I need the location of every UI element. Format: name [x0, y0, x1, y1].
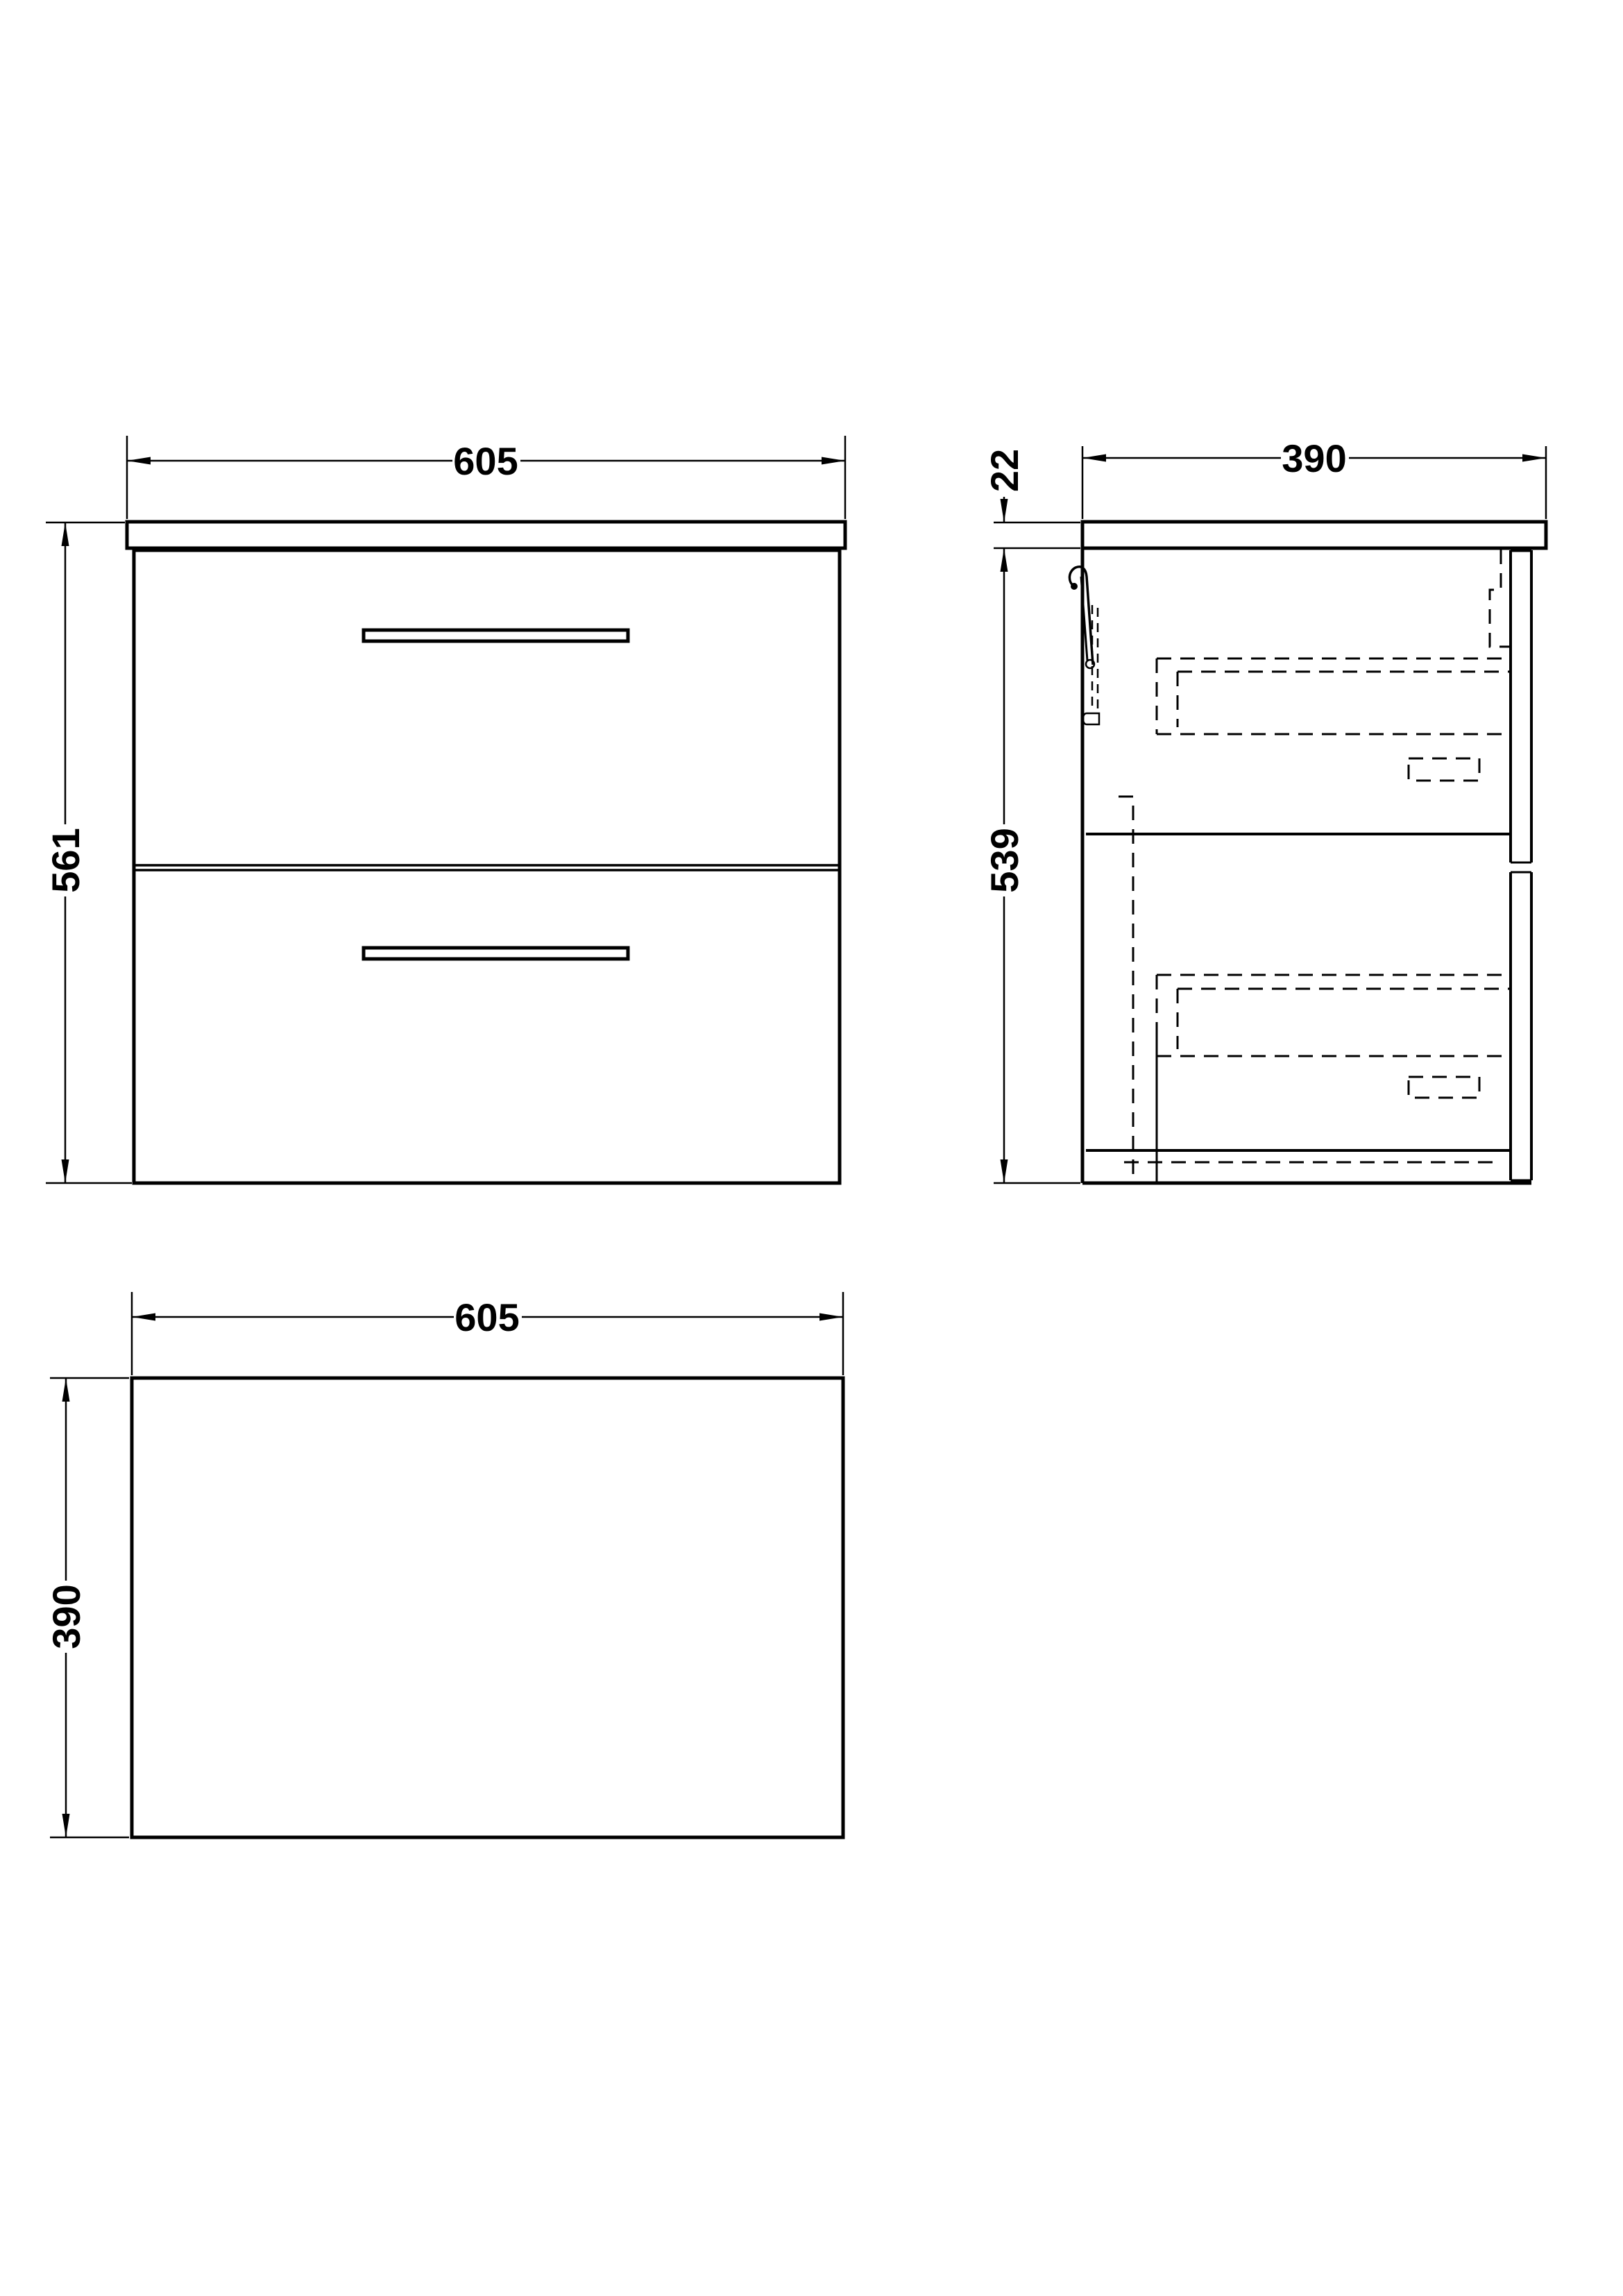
arrowhead-down-icon: [62, 1814, 70, 1837]
arrowhead-right-icon: [1522, 454, 1546, 462]
upper-drawer-handle-hidden: [1409, 758, 1479, 781]
worktop-thickness-label-group: 22: [983, 444, 1026, 497]
drawer-fronts-edge: [1511, 550, 1531, 1180]
cabinet-height-label-group: 539: [983, 824, 1026, 896]
arrowhead-left-icon: [132, 1313, 155, 1321]
lower-drawer-handle: [364, 948, 628, 959]
front-height-label-group: 561: [44, 824, 87, 896]
front-fixing-bracket-hidden: [1490, 550, 1511, 647]
arrowhead-right-icon: [822, 457, 845, 465]
plan-outline: [132, 1378, 843, 1837]
front-width-label: 605: [453, 439, 518, 483]
drawing-canvas: 605 561: [0, 0, 1623, 2296]
plan-view: 605 390: [44, 1292, 843, 1837]
side-depth-dimension: 390: [1082, 436, 1546, 519]
upper-drawer-handle: [364, 630, 628, 641]
front-height-dimension: 561: [44, 522, 132, 1183]
worktop-thickness-label: 22: [983, 449, 1026, 492]
plan-width-label: 605: [454, 1295, 519, 1339]
side-cabinet-height-dimension: 539: [983, 548, 1080, 1183]
arrowhead-up-icon: [1001, 548, 1008, 572]
plan-width-dimension: 605: [132, 1292, 843, 1375]
front-elevation-view: 605 561: [44, 436, 845, 1183]
side-elevation-view: 390 22 539: [983, 436, 1546, 1183]
technical-drawing-page: 605 561: [0, 0, 1623, 2296]
side-depth-label: 390: [1282, 436, 1346, 480]
arrowhead-down-icon: [1001, 499, 1008, 522]
front-worktop: [127, 522, 845, 548]
plan-depth-label: 390: [44, 1584, 88, 1649]
front-cabinet-body: [134, 550, 840, 1183]
plan-depth-dimension: 390: [44, 1378, 129, 1837]
front-width-dimension: 605: [127, 436, 845, 519]
front-height-label: 561: [44, 828, 87, 892]
arrowhead-up-icon: [62, 1378, 70, 1402]
bracket-foot: [1083, 713, 1099, 724]
lower-drawer-handle-hidden: [1409, 1077, 1479, 1098]
rear-recess-hidden-line: [1119, 797, 1133, 1174]
arrowhead-right-icon: [819, 1313, 843, 1321]
cabinet-height-label: 539: [983, 828, 1026, 892]
arrowhead-left-icon: [1082, 454, 1106, 462]
arrowhead-down-icon: [62, 1159, 69, 1183]
side-worktop-thickness-dimension: 22: [983, 444, 1080, 548]
arrowhead-down-icon: [1001, 1159, 1008, 1183]
wall-hanger-bracket-icon: [1069, 567, 1099, 724]
side-worktop: [1082, 522, 1546, 548]
arrowhead-left-icon: [127, 457, 151, 465]
plan-depth-label-group: 390: [44, 1581, 88, 1653]
hidden-internal-details: [1119, 550, 1511, 1174]
arrowhead-up-icon: [62, 522, 69, 546]
